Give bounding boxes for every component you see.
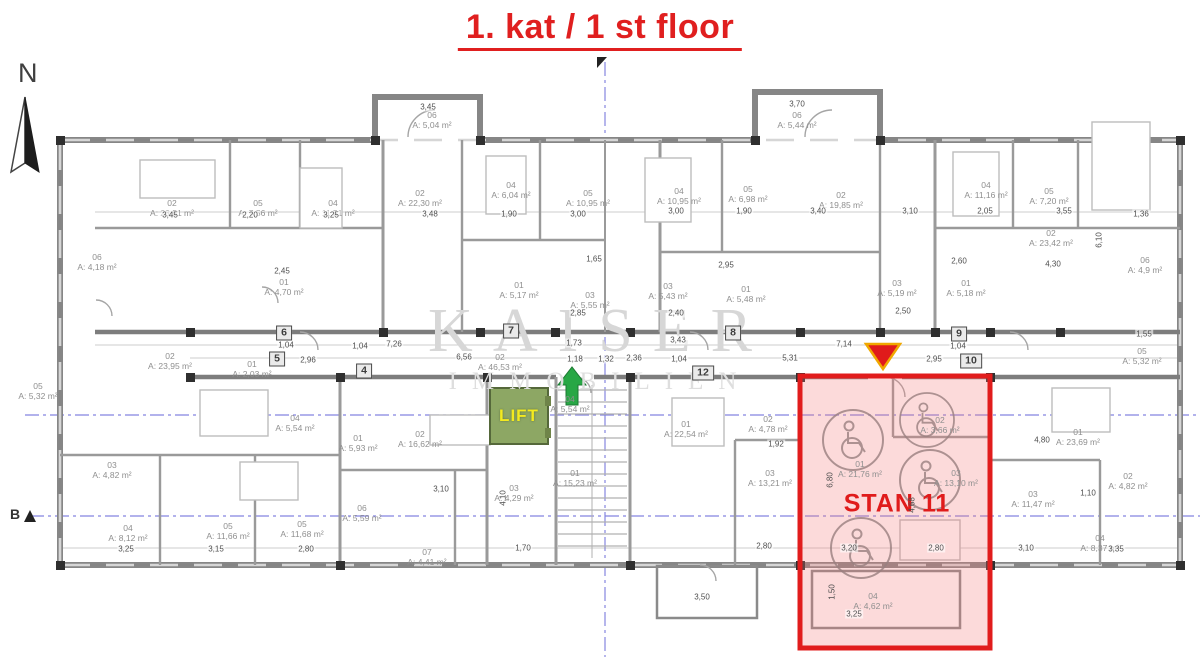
dimension-label: 6,10 bbox=[1095, 231, 1104, 249]
dimension-label: 1,50 bbox=[828, 583, 837, 601]
dimension-label: 2,80 bbox=[755, 542, 773, 551]
dimension-label: 3,10 bbox=[901, 207, 919, 216]
dimension-label: 3,25 bbox=[322, 211, 340, 220]
room-label: 01A: 15,23 m² bbox=[553, 468, 597, 488]
dimension-label: 3,25 bbox=[845, 610, 863, 619]
dimension-label: 3,50 bbox=[693, 593, 711, 602]
room-label: 01A: 5,18 m² bbox=[946, 278, 985, 298]
room-label: 04A: 6,04 m² bbox=[491, 180, 530, 200]
dimension-label: 6,56 bbox=[455, 353, 473, 362]
dimension-label: 3,70 bbox=[788, 100, 806, 109]
dimension-label: 2,60 bbox=[950, 257, 968, 266]
room-label: 05A: 5,32 m² bbox=[1122, 346, 1161, 366]
room-label: 03A: 5,19 m² bbox=[877, 278, 916, 298]
dimension-label: 3,20 bbox=[840, 544, 858, 553]
room-label: 02A: 46,53 m² bbox=[478, 352, 522, 372]
section-b-label: B bbox=[10, 506, 20, 522]
north-needle-icon bbox=[11, 97, 39, 172]
dimension-label: 2,45 bbox=[273, 267, 291, 276]
corridor-node: 4 bbox=[356, 364, 372, 379]
dimension-label: 1,73 bbox=[565, 339, 583, 348]
dimension-label: 3,45 bbox=[161, 211, 179, 220]
room-label: 06A: 5,59 m² bbox=[342, 503, 381, 523]
dimension-label: 3,25 bbox=[117, 545, 135, 554]
room-label: 05A: 7,20 m² bbox=[1029, 186, 1068, 206]
room-label: 04A: 8,12 m² bbox=[108, 523, 147, 543]
room-label: 05A: 11,66 m² bbox=[206, 521, 249, 541]
corridor-node: 5 bbox=[269, 352, 285, 367]
room-label: 02A: 4,82 m² bbox=[1108, 471, 1147, 491]
room-label: 02A: 23,95 m² bbox=[148, 351, 192, 371]
stan11-label: STAN 11 bbox=[844, 490, 951, 519]
dimension-label: 1,04 bbox=[351, 342, 369, 351]
dimension-label: 2,96 bbox=[299, 356, 317, 365]
dimension-label: 5,31 bbox=[781, 354, 799, 363]
room-label: 03A: 5,55 m² bbox=[570, 290, 609, 310]
room-label: 03A: 5,43 m² bbox=[648, 281, 687, 301]
corridor-node: 9 bbox=[951, 327, 967, 342]
room-label: 07A: 4,41 m² bbox=[407, 547, 446, 567]
room-label: 03A: 13,10 m² bbox=[934, 468, 978, 488]
dimension-label: 3,10 bbox=[432, 485, 450, 494]
corridor-node: 12 bbox=[692, 366, 714, 381]
dimension-label: 2,20 bbox=[241, 211, 259, 220]
floor-plan-page: KAISER IMMOBILIEN 1. kat / 1 st floor N … bbox=[0, 0, 1200, 657]
dimension-label: 1,36 bbox=[1132, 210, 1150, 219]
dimension-label: 1,55 bbox=[1135, 330, 1153, 339]
room-label: 06A: 4,9 m² bbox=[1128, 255, 1162, 275]
room-label: 06A: 5,44 m² bbox=[777, 110, 816, 130]
dimension-label: 1,10 bbox=[1079, 489, 1097, 498]
dimension-label: 2,36 bbox=[625, 354, 643, 363]
room-label: 01A: 22,54 m² bbox=[664, 419, 708, 439]
dimension-label: 3,00 bbox=[667, 207, 685, 216]
dimension-label: 2,80 bbox=[297, 545, 315, 554]
dimension-label: 3,40 bbox=[809, 207, 827, 216]
dimension-label: 7,14 bbox=[835, 340, 853, 349]
north-label: N bbox=[18, 58, 38, 89]
corridor-node: 6 bbox=[276, 326, 292, 341]
room-label: 01A: 21,76 m² bbox=[838, 459, 882, 479]
room-label: 02A: 23,42 m² bbox=[1029, 228, 1073, 248]
dimension-label: 6,80 bbox=[826, 471, 835, 489]
dimension-label: 2,80 bbox=[927, 544, 945, 553]
dimension-label: 1,90 bbox=[735, 207, 753, 216]
dimension-label: 4,30 bbox=[1044, 260, 1062, 269]
dimension-label: 1,70 bbox=[514, 544, 532, 553]
dimension-label: 3,43 bbox=[669, 336, 687, 345]
room-label: 05A: 10,95 m² bbox=[566, 188, 610, 208]
room-label: 04A: 5,54 m² bbox=[550, 394, 589, 414]
dimension-label: 3,15 bbox=[207, 545, 225, 554]
room-label: 02A: 16,62 m² bbox=[398, 429, 442, 449]
page-title: 1. kat / 1 st floor bbox=[458, 8, 742, 51]
corridor-node: 7 bbox=[503, 324, 519, 339]
corridor-node: 8 bbox=[725, 326, 741, 341]
room-label: 04A: 11,16 m² bbox=[964, 180, 1007, 200]
dimension-label: 4,80 bbox=[1033, 436, 1051, 445]
dimension-label: 2,95 bbox=[925, 355, 943, 364]
dimension-label: 7,26 bbox=[385, 340, 403, 349]
dimension-label: 3,55 bbox=[1055, 207, 1073, 216]
room-label: 03A: 4,82 m² bbox=[92, 460, 131, 480]
room-label: 04A: 4,62 m² bbox=[853, 591, 892, 611]
dimension-label: 3,00 bbox=[569, 210, 587, 219]
room-label: 03A: 11,47 m² bbox=[1011, 489, 1054, 509]
dimension-label: 1,90 bbox=[500, 210, 518, 219]
corridor-node: 10 bbox=[960, 354, 982, 369]
lift-label: LIFT bbox=[499, 406, 539, 426]
dimension-label: 1,32 bbox=[597, 355, 615, 364]
dimension-label: 1,65 bbox=[585, 255, 603, 264]
dimension-label: 3,10 bbox=[1017, 544, 1035, 553]
stan11-entry-marker-icon bbox=[866, 344, 900, 369]
dimension-label: 1,04 bbox=[670, 355, 688, 364]
room-label: 01A: 5,48 m² bbox=[726, 284, 765, 304]
dimension-label: 3,35 bbox=[1107, 545, 1125, 554]
dimension-label: 2,40 bbox=[667, 309, 685, 318]
dimension-label: 2,85 bbox=[569, 309, 587, 318]
room-label: 06A: 5,04 m² bbox=[412, 110, 451, 130]
room-label: 06A: 4,18 m² bbox=[77, 252, 116, 272]
dimension-label: 4,10 bbox=[499, 489, 508, 507]
dimension-label: 4,68 bbox=[908, 496, 917, 514]
floor-plan-drawing bbox=[0, 0, 1200, 657]
room-label: 05A: 6,98 m² bbox=[728, 184, 767, 204]
dimension-label: 2,50 bbox=[894, 307, 912, 316]
room-label: 03A: 13,21 m² bbox=[748, 468, 792, 488]
room-label: 01A: 5,17 m² bbox=[499, 280, 538, 300]
room-label: 01A: 4,70 m² bbox=[264, 277, 303, 297]
room-label: 05A: 5,32 m² bbox=[18, 381, 57, 401]
room-label: 02A: 22,30 m² bbox=[398, 188, 442, 208]
dimension-label: 3,45 bbox=[419, 103, 437, 112]
dimension-label: 1,18 bbox=[566, 355, 584, 364]
room-label: 01A: 23,69 m² bbox=[1056, 427, 1100, 447]
dimension-label: 1,04 bbox=[949, 342, 967, 351]
room-label: 05A: 11,68 m² bbox=[280, 519, 323, 539]
room-label: 01A: 2,03 m² bbox=[232, 359, 271, 379]
room-label: 02A: 4,78 m² bbox=[748, 414, 787, 434]
dimension-label: 3,48 bbox=[421, 210, 439, 219]
dimension-label: 2,95 bbox=[717, 261, 735, 270]
room-label: 02A: 3,66 m² bbox=[920, 415, 959, 435]
room-label: 01A: 5,93 m² bbox=[338, 433, 377, 453]
dimension-label: 2,05 bbox=[976, 207, 994, 216]
room-label: 04A: 5,54 m² bbox=[275, 413, 314, 433]
dimension-label: 1,92 bbox=[767, 440, 785, 449]
room-label: 04A: 10,95 m² bbox=[657, 186, 701, 206]
dimension-label: 1,04 bbox=[277, 341, 295, 350]
